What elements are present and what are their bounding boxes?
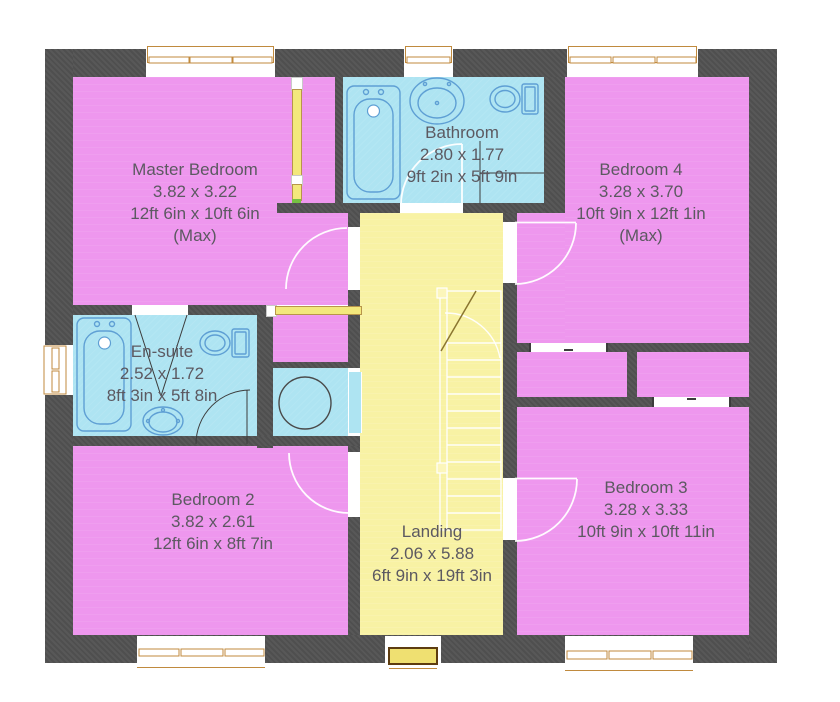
room-size-note: (Max) bbox=[576, 225, 705, 247]
wall-landing-left-b bbox=[348, 290, 360, 368]
door-opening-bedroom2 bbox=[348, 452, 360, 517]
room-label-master-bedroom: Master Bedroom 3.82 x 3.22 12ft 6in x 10… bbox=[130, 159, 259, 247]
door-opening-bedroom3 bbox=[503, 478, 517, 540]
exterior-wall-top bbox=[45, 49, 777, 77]
room-name: Bedroom 3 bbox=[577, 477, 715, 499]
wall-bathroom-left bbox=[335, 77, 343, 213]
wall-bedroom3-north-b bbox=[730, 397, 749, 407]
wall-landing-right-a bbox=[503, 213, 517, 222]
closet-left-area bbox=[517, 352, 627, 397]
room-size-imperial: 10ft 9in x 10ft 11in bbox=[577, 521, 715, 543]
closet-right-area bbox=[637, 352, 749, 397]
door-opening-closet-right bbox=[653, 397, 730, 407]
wall-landing-left-d bbox=[348, 517, 360, 635]
room-label-bedroom3: Bedroom 3 3.28 x 3.33 10ft 9in x 10ft 11… bbox=[577, 477, 715, 543]
room-name: En-suite bbox=[107, 341, 218, 363]
room-size-imperial: 12ft 6in x 8ft 7in bbox=[153, 533, 273, 555]
room-label-landing: Landing 2.06 x 5.88 6ft 9in x 19ft 3in bbox=[372, 521, 492, 587]
room-bedroom4-area2 bbox=[517, 213, 565, 343]
room-name: Bathroom bbox=[407, 122, 518, 144]
room-size-imperial: 9ft 2in x 5ft 9in bbox=[407, 166, 518, 188]
door-opening-ensuite bbox=[132, 305, 188, 315]
wall-bedroom3-north-a bbox=[503, 397, 653, 407]
room-size-metric: 3.28 x 3.70 bbox=[576, 181, 705, 203]
airing-cupboard-area bbox=[273, 368, 348, 437]
floor-plan: Master Bedroom 3.82 x 3.22 12ft 6in x 10… bbox=[0, 0, 840, 702]
room-size-imperial: 8ft 3in x 5ft 8in bbox=[107, 385, 218, 407]
wall-closet-divider bbox=[627, 352, 637, 397]
room-label-bedroom2: Bedroom 2 3.82 x 2.61 12ft 6in x 8ft 7in bbox=[153, 489, 273, 555]
room-label-bedroom4: Bedroom 4 3.28 x 3.70 10ft 9in x 12ft 1i… bbox=[576, 159, 705, 247]
wardrobe2-door-panel bbox=[275, 306, 362, 315]
wardrobe-door-tick bbox=[292, 199, 301, 203]
door-opening-bathroom bbox=[400, 203, 463, 213]
room-size-metric: 3.82 x 3.22 bbox=[130, 181, 259, 203]
exterior-wall-bottom bbox=[45, 635, 777, 663]
exterior-wall-right bbox=[749, 49, 777, 663]
wall-bathroom-south-b bbox=[463, 203, 544, 213]
room-size-metric: 2.80 x 1.77 bbox=[407, 144, 518, 166]
door-opening-cupboard bbox=[348, 372, 362, 433]
wall-wardrobe-cupboard bbox=[273, 362, 348, 368]
wardrobe-door-panel-1 bbox=[292, 89, 302, 177]
door-opening-master bbox=[348, 227, 360, 290]
room-label-bathroom: Bathroom 2.80 x 1.77 9ft 2in x 5ft 9in bbox=[407, 122, 518, 188]
room-size-metric: 2.52 x 1.72 bbox=[107, 363, 218, 385]
door-opening-closet-left bbox=[530, 343, 607, 352]
room-size-imperial: 6ft 9in x 19ft 3in bbox=[372, 565, 492, 587]
wall-bathroom-right bbox=[544, 77, 565, 213]
exterior-wall-left bbox=[45, 49, 73, 663]
wall-master-south bbox=[277, 203, 352, 213]
room-name: Bedroom 4 bbox=[576, 159, 705, 181]
door-opening-bedroom4 bbox=[503, 222, 517, 283]
room-name: Bedroom 2 bbox=[153, 489, 273, 511]
wardrobe-area bbox=[273, 315, 348, 362]
wall-landing-left-a bbox=[348, 203, 360, 227]
room-name: Landing bbox=[372, 521, 492, 543]
wall-ensuite-north-a bbox=[73, 305, 132, 315]
wall-landing-right-b bbox=[503, 283, 517, 478]
room-label-ensuite: En-suite 2.52 x 1.72 8ft 3in x 5ft 8in bbox=[107, 341, 218, 407]
wall-ensuite-right bbox=[257, 305, 273, 448]
room-name: Master Bedroom bbox=[130, 159, 259, 181]
wall-bedroom2-north bbox=[73, 436, 360, 446]
room-size-imperial: 12ft 6in x 10ft 6in bbox=[130, 203, 259, 225]
room-size-metric: 2.06 x 5.88 bbox=[372, 543, 492, 565]
room-size-note: (Max) bbox=[130, 225, 259, 247]
room-size-metric: 3.28 x 3.33 bbox=[577, 499, 715, 521]
wall-landing-right-c bbox=[503, 540, 517, 635]
wall-bedroom4-south-b bbox=[607, 343, 749, 352]
room-size-imperial: 10ft 9in x 12ft 1in bbox=[576, 203, 705, 225]
wall-bedroom4-south-a bbox=[503, 343, 530, 352]
room-size-metric: 3.82 x 2.61 bbox=[153, 511, 273, 533]
